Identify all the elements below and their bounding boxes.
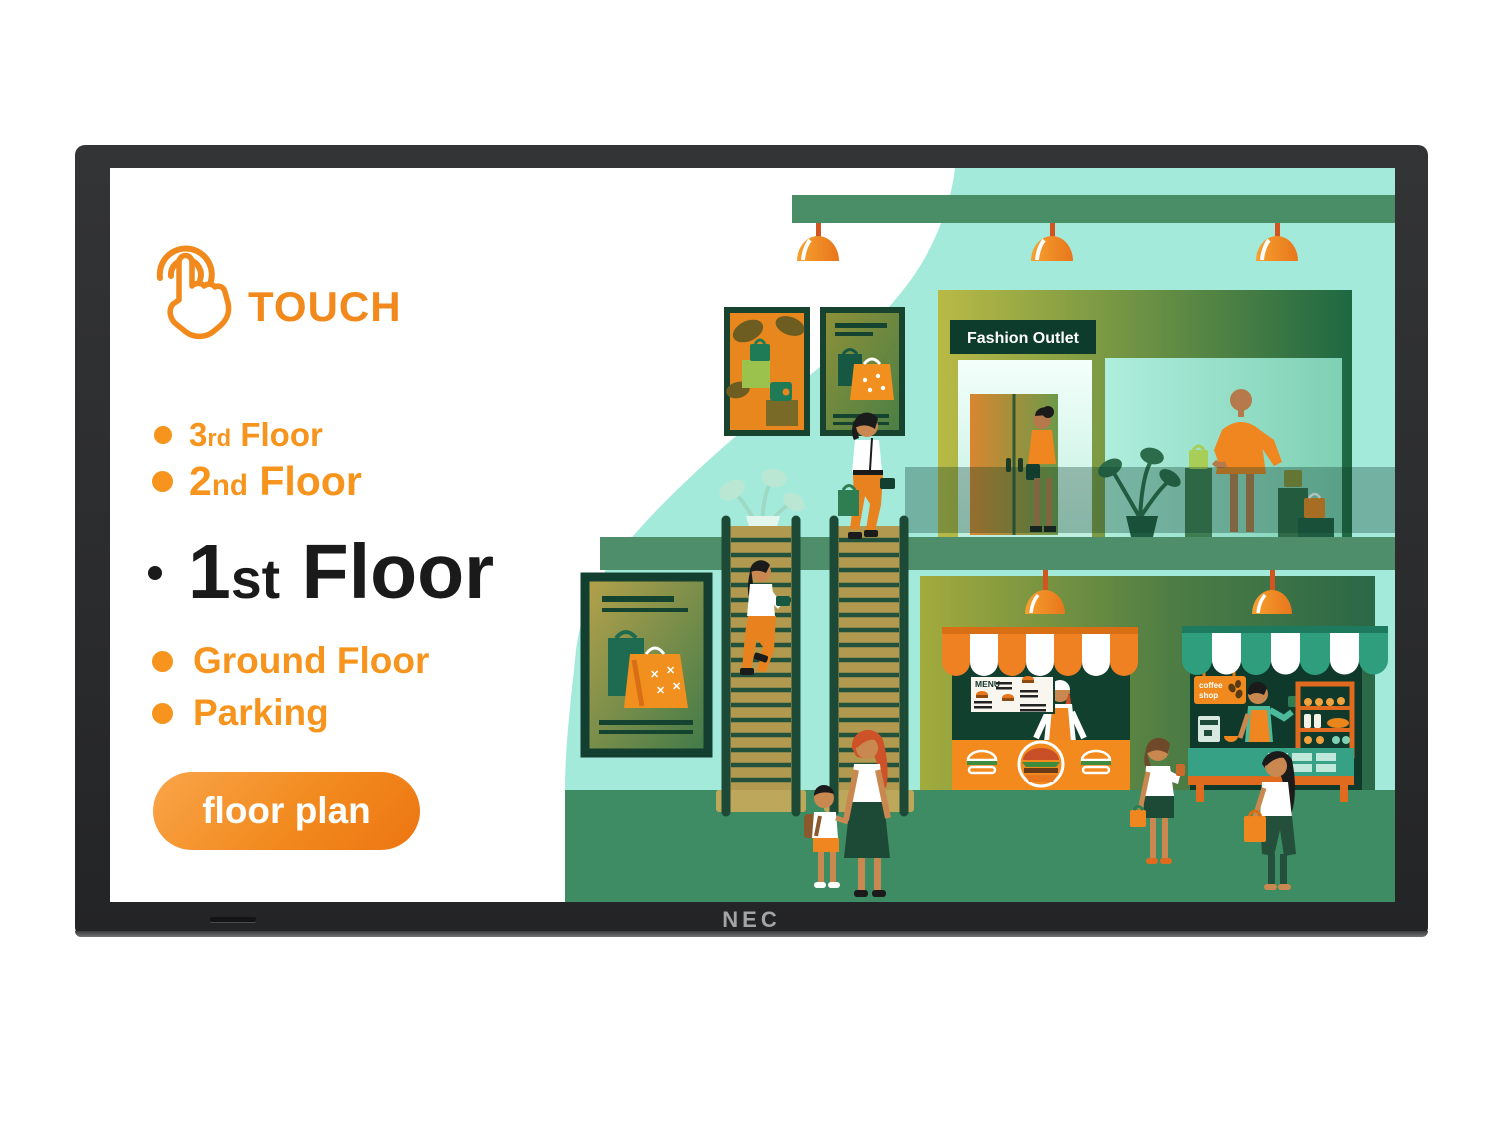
floor-item-2nd[interactable]: 2ndFloor	[152, 458, 362, 505]
bullet-icon	[152, 703, 173, 724]
floor-slab	[600, 537, 1395, 570]
touch-indicator: TOUCH	[150, 232, 402, 344]
svg-text:✕: ✕	[650, 669, 659, 681]
svg-text:✕: ✕	[656, 685, 665, 697]
floor-item-1st-active[interactable]: 1stFloor	[148, 528, 494, 617]
floor-item-parking[interactable]: Parking	[152, 692, 329, 734]
svg-text:coffee: coffee	[1199, 681, 1223, 690]
bullet-icon	[148, 566, 162, 580]
bullet-icon	[152, 651, 173, 672]
floor-name: Floor	[240, 416, 322, 454]
svg-text:✕: ✕	[666, 665, 675, 677]
floor-name: Floor	[302, 528, 494, 617]
fashion-outlet-sign: Fashion Outlet	[967, 330, 1080, 347]
floor-ordinal: st	[231, 547, 280, 611]
floor-name: Parking	[193, 692, 329, 734]
floor-number: 1	[188, 528, 231, 617]
poster-leaf-bags	[724, 310, 807, 433]
ceiling-beam	[792, 195, 1395, 223]
touch-label: TOUCH	[248, 283, 402, 331]
svg-text:shop: shop	[1199, 691, 1218, 700]
nec-logo: NEC	[75, 907, 1428, 933]
floor-item-3rd[interactable]: 3rdFloor	[154, 416, 323, 454]
burger-stand: MENU	[942, 627, 1138, 790]
bullet-icon	[154, 426, 172, 444]
touch-hand-icon	[150, 232, 232, 344]
svg-text:✕: ✕	[672, 681, 681, 693]
pendant-lamp	[797, 223, 839, 261]
floor-ordinal: rd	[207, 425, 231, 453]
screen: Fashion Outlet	[110, 168, 1395, 902]
floor-name: Ground Floor	[193, 640, 429, 682]
floor-number: 2	[189, 458, 212, 505]
floor-plan-button[interactable]: floor plan	[153, 772, 420, 850]
monitor-bezel: Fashion Outlet	[75, 145, 1428, 937]
balcony-railing	[905, 467, 1395, 533]
menu-board: MENU	[970, 676, 1054, 713]
floor-selector-panel: TOUCH 3rdFloor 2ndFloor 1stFloor Ground …	[110, 168, 630, 902]
floor-ordinal: nd	[212, 469, 248, 503]
floor-name: Floor	[259, 458, 361, 505]
bullet-icon	[152, 471, 173, 492]
floor-item-ground[interactable]: Ground Floor	[152, 640, 429, 682]
floor-number: 3	[189, 416, 207, 454]
